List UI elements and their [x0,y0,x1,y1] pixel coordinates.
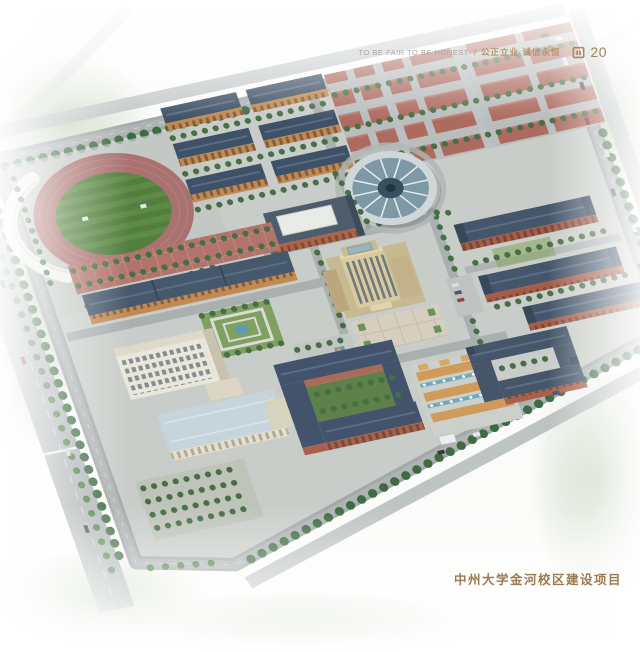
page-header: TO BE FAIR TO BE HONEST / 公正立业 诚信永恒 20 [359,44,607,60]
campus-aerial-rendering [0,0,640,652]
mist-overlay [0,0,640,652]
project-caption: 中州大学金河校区建设项目 [454,569,622,588]
slogan-separator: / [474,48,476,57]
slogan-chinese: 公正立业 诚信永恒 [481,46,560,58]
page-canvas: TO BE FAIR TO BE HONEST / 公正立业 诚信永恒 20 中… [0,0,640,652]
brand-logo-icon [572,46,585,59]
page-number: 20 [590,44,607,60]
slogan-english: TO BE FAIR TO BE HONEST [359,48,469,57]
